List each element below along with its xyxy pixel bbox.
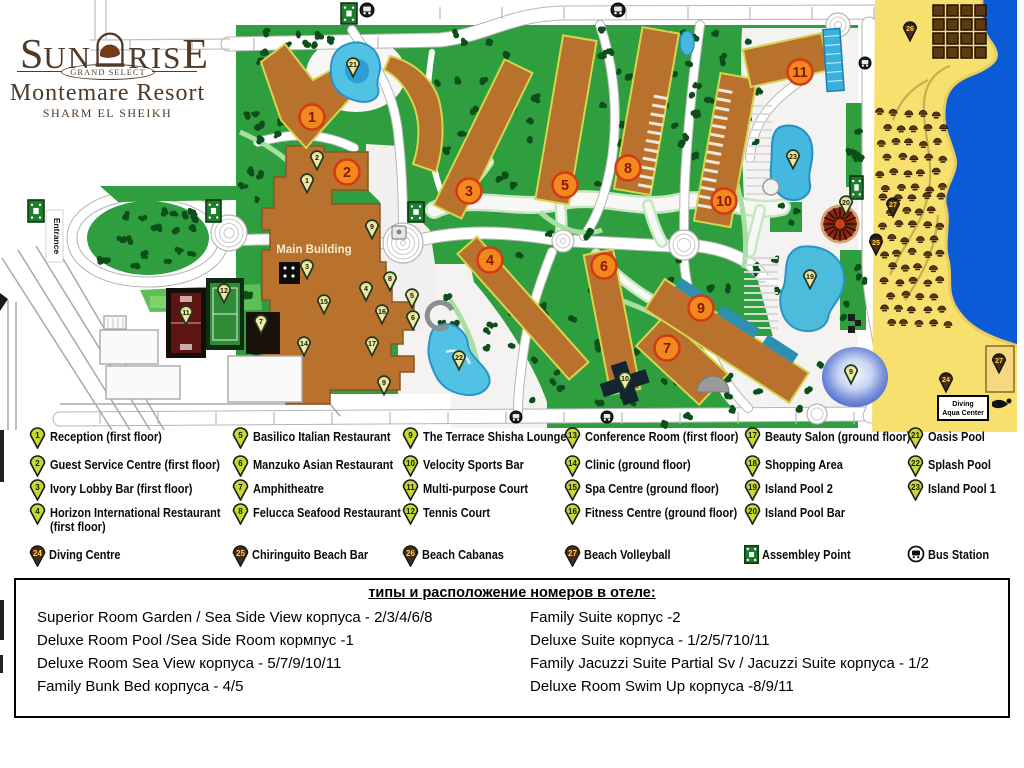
svg-text:17: 17 [748,431,757,440]
svg-text:18: 18 [748,459,757,468]
svg-text:22: 22 [911,459,920,468]
svg-text:7: 7 [238,483,243,492]
svg-text:6: 6 [238,459,243,468]
svg-text:2: 2 [35,459,40,468]
svg-text:27: 27 [568,549,577,558]
svg-text:11: 11 [406,483,415,492]
svg-text:5: 5 [238,431,243,440]
svg-text:25: 25 [236,549,245,558]
svg-text:16: 16 [568,507,577,516]
svg-text:24: 24 [33,549,42,558]
svg-text:20: 20 [748,507,757,516]
svg-text:14: 14 [568,459,577,468]
svg-text:1: 1 [35,431,40,440]
svg-text:8: 8 [238,507,243,516]
svg-text:10: 10 [406,459,415,468]
svg-text:26: 26 [406,549,415,558]
svg-text:13: 13 [568,431,577,440]
svg-text:4: 4 [35,507,40,516]
svg-text:15: 15 [568,483,577,492]
svg-text:21: 21 [911,431,920,440]
svg-text:23: 23 [911,483,920,492]
svg-text:9: 9 [408,431,413,440]
svg-text:12: 12 [406,507,415,516]
svg-text:19: 19 [748,483,757,492]
svg-text:3: 3 [35,483,40,492]
